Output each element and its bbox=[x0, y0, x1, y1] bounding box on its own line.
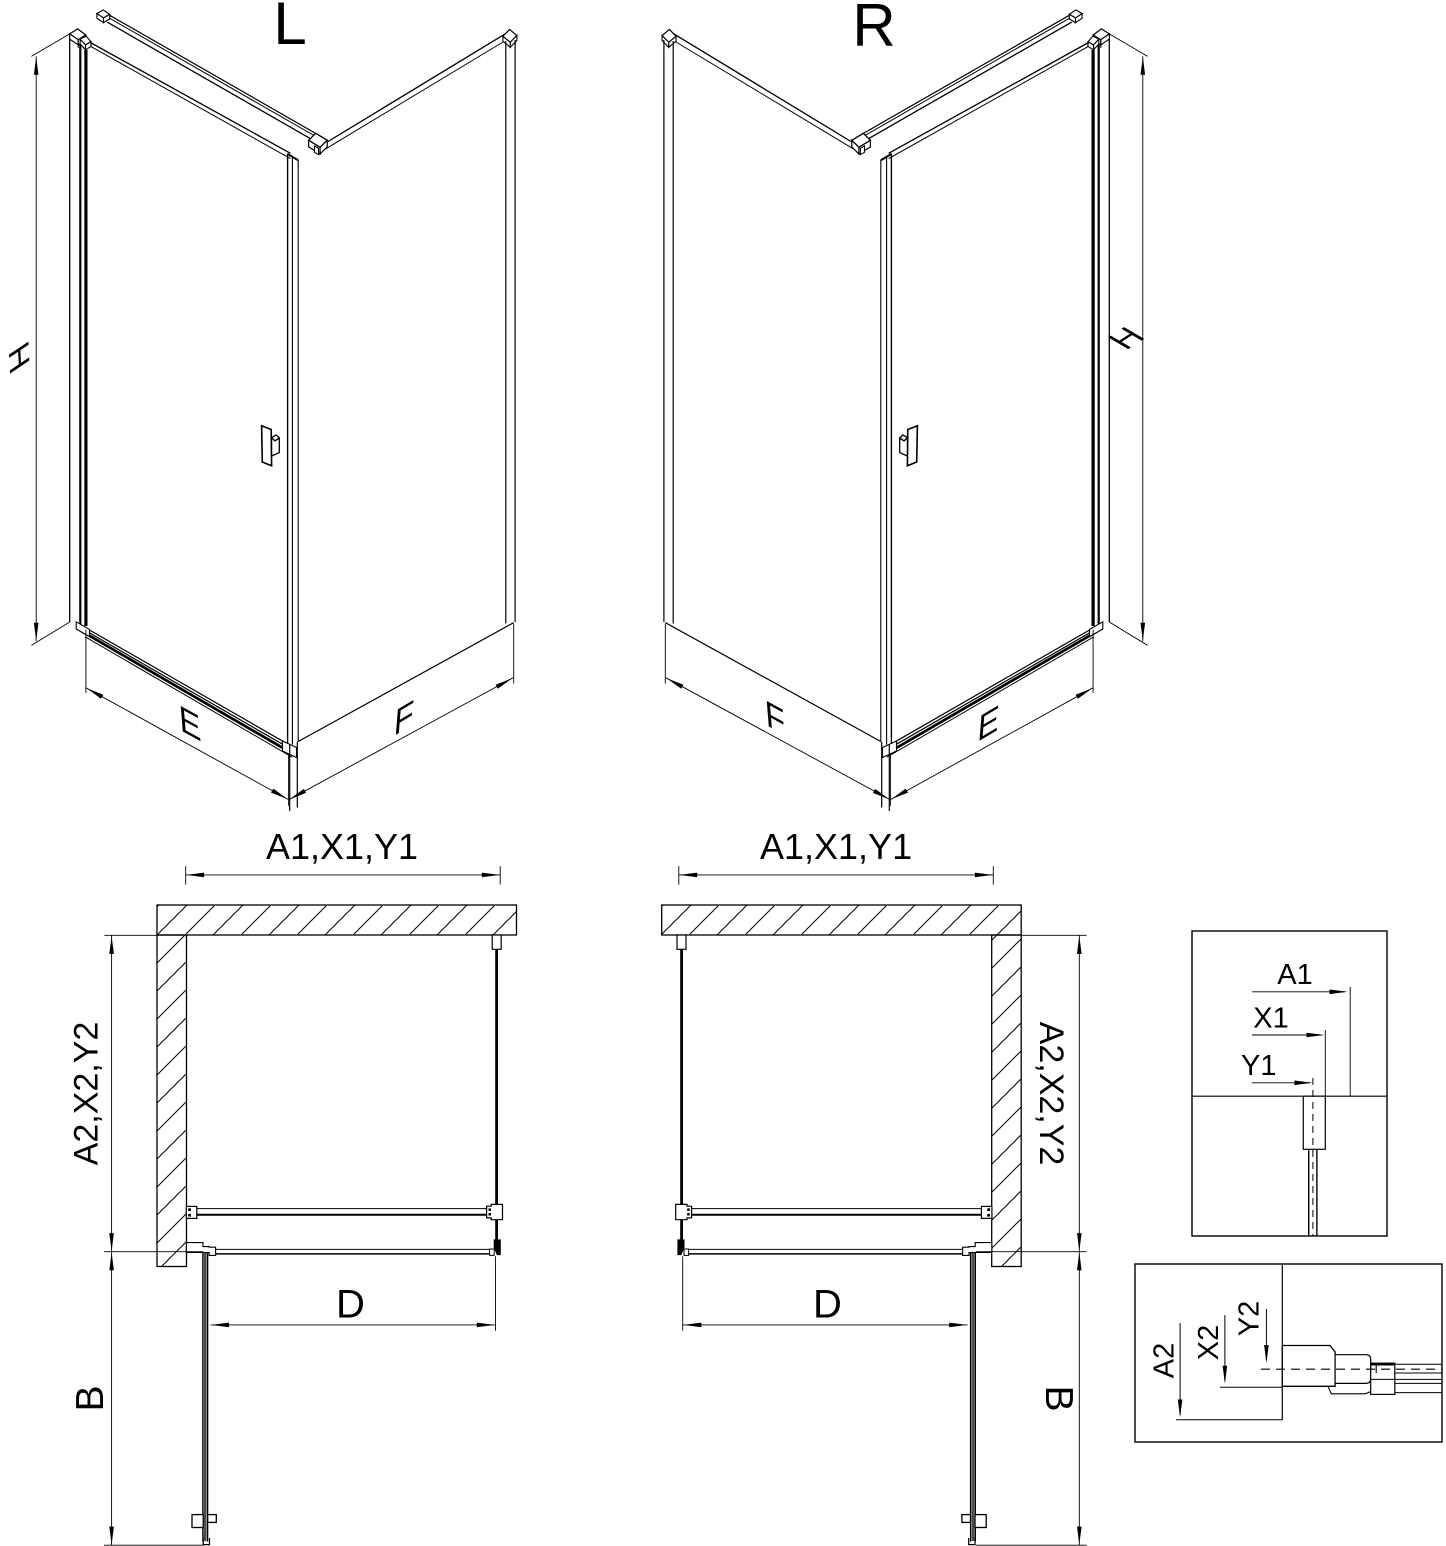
svg-text:A2: A2 bbox=[1149, 1343, 1181, 1378]
svg-text:D: D bbox=[813, 1283, 842, 1327]
svg-text:H: H bbox=[2, 335, 35, 381]
svg-text:Y2: Y2 bbox=[1234, 1301, 1266, 1336]
svg-text:A1: A1 bbox=[1277, 959, 1312, 991]
svg-text:D: D bbox=[336, 1283, 365, 1327]
svg-text:E: E bbox=[177, 696, 202, 750]
svg-text:A2,X2,Y2: A2,X2,Y2 bbox=[68, 1022, 106, 1166]
svg-text:A2,X2,Y2: A2,X2,Y2 bbox=[1032, 1022, 1070, 1166]
svg-text:X1: X1 bbox=[1253, 1003, 1288, 1035]
svg-text:F: F bbox=[393, 691, 416, 744]
svg-text:R: R bbox=[852, 0, 895, 59]
svg-text:A1,X1,Y1: A1,X1,Y1 bbox=[266, 826, 418, 867]
svg-text:E: E bbox=[976, 696, 1001, 751]
svg-text:F: F bbox=[763, 691, 786, 744]
svg-text:X2: X2 bbox=[1193, 1325, 1225, 1360]
svg-text:Y1: Y1 bbox=[1241, 1050, 1276, 1082]
svg-text:B: B bbox=[69, 1385, 112, 1411]
svg-text:L: L bbox=[273, 0, 306, 57]
svg-text:B: B bbox=[1037, 1385, 1080, 1411]
svg-text:H: H bbox=[1100, 322, 1153, 354]
svg-text:A1,X1,Y1: A1,X1,Y1 bbox=[760, 826, 912, 867]
